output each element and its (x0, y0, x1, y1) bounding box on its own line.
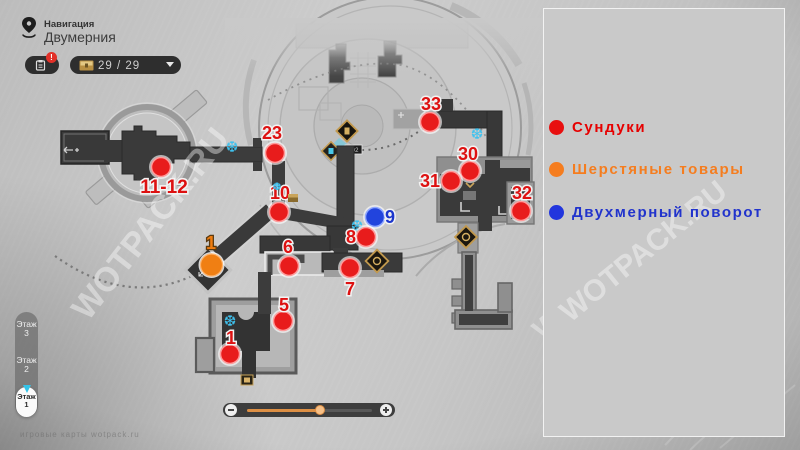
svg-text:33: 33 (421, 94, 441, 114)
svg-text:11-12: 11-12 (140, 177, 188, 198)
svg-text:30: 30 (458, 144, 478, 164)
svg-text:23: 23 (262, 123, 282, 143)
svg-text:1: 1 (206, 233, 216, 253)
svg-text:31: 31 (420, 171, 440, 191)
svg-text:9: 9 (385, 207, 395, 227)
svg-text:32: 32 (512, 183, 532, 203)
svg-text:8: 8 (346, 227, 356, 247)
svg-text:1: 1 (226, 328, 236, 348)
svg-text:5: 5 (279, 295, 289, 315)
svg-text:7: 7 (345, 279, 355, 299)
svg-text:❆: ❆ (471, 126, 484, 143)
svg-text:❆: ❆ (273, 182, 282, 193)
svg-text:6: 6 (283, 237, 293, 257)
